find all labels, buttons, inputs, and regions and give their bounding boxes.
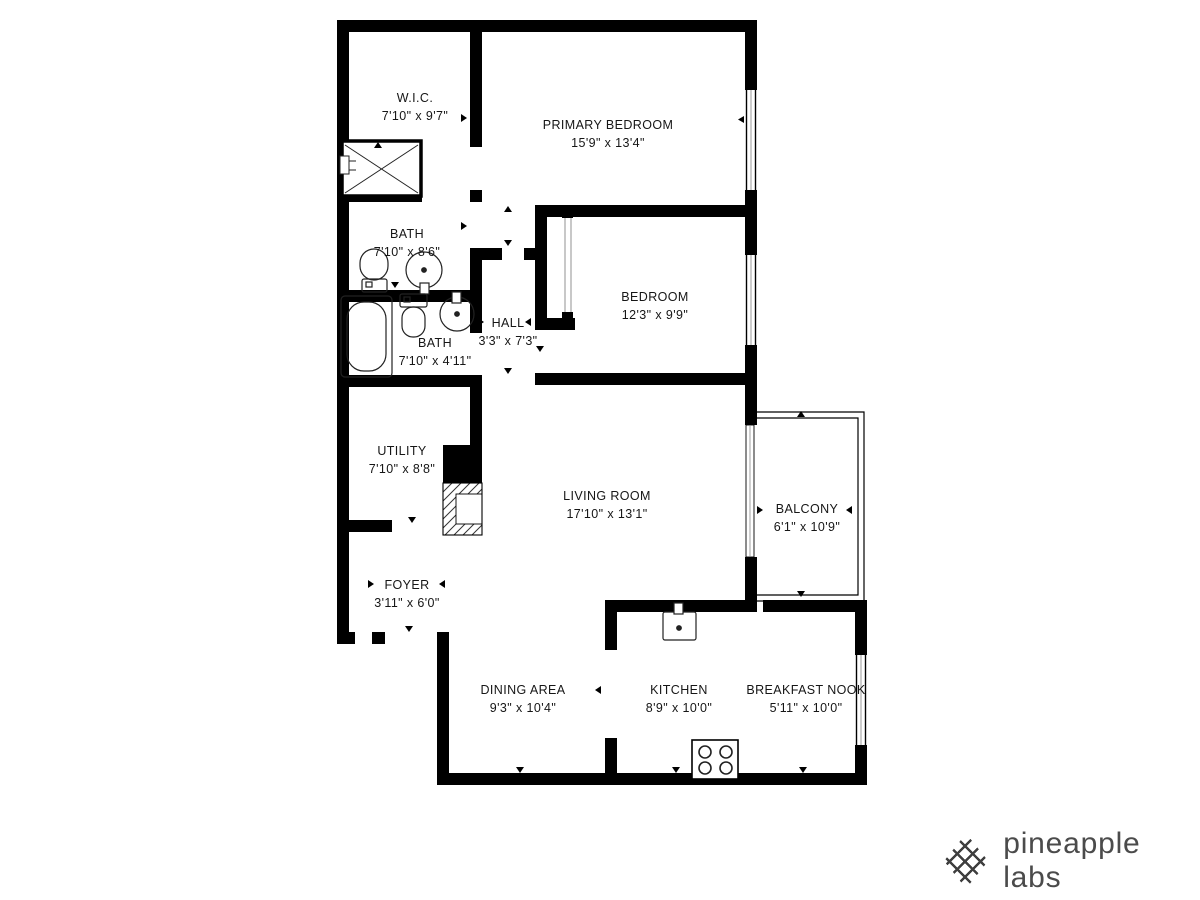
room-label-breakfast-nook: BREAKFAST NOOK 5'11" x 10'0" [746,684,865,715]
room-label-balcony: BALCONY 6'1" x 10'9" [774,503,840,534]
room-dims: 7'10" x 8'8" [369,463,435,476]
room-dims: 6'1" x 10'9" [774,521,840,534]
window-bedroom [745,255,757,345]
room-name: KITCHEN [650,684,708,697]
room-name: PRIMARY BEDROOM [543,119,674,132]
room-dims: 7'10" x 4'11" [399,355,472,368]
room-dims: 3'3" x 7'3" [478,335,537,348]
room-name: W.I.C. [397,92,433,105]
room-label-utility: UTILITY 7'10" x 8'8" [369,445,435,476]
room-name: BREAKFAST NOOK [746,684,865,697]
room-dims: 7'10" x 9'7" [382,110,448,123]
room-label-bath-upper: BATH 7'10" x 8'6" [374,228,440,259]
room-name: HALL [492,317,525,330]
room-name: FOYER [384,579,429,592]
pineapple-lattice-icon [944,834,988,889]
room-label-hall: HALL 3'3" x 7'3" [478,317,537,348]
room-name: BEDROOM [621,291,688,304]
logo: pineapple labs [944,827,1200,895]
room-dims: 12'3" x 9'9" [622,309,688,322]
room-dims: 3'11" x 6'0" [374,597,439,610]
window-primary-bedroom [745,90,757,190]
room-name: UTILITY [377,445,426,458]
shower-icon [340,141,421,196]
room-label-dining-area: DINING AREA 9'3" x 10'4" [481,684,566,715]
closet-door [562,210,573,320]
room-dims: 5'11" x 10'0" [770,702,843,715]
room-name: BATH [390,228,424,241]
floorplan-page: W.I.C. 7'10" x 9'7" PRIMARY BEDROOM 15'9… [0,0,1200,900]
room-label-bath-lower: BATH 7'10" x 4'11" [399,337,472,368]
room-label-kitchen: KITCHEN 8'9" x 10'0" [646,684,712,715]
room-dims: 17'10" x 13'1" [566,508,647,521]
room-label-bedroom: BEDROOM 12'3" x 9'9" [621,291,688,322]
room-name: BALCONY [776,503,839,516]
room-name: LIVING ROOM [563,490,651,503]
balcony-sliding-door [746,425,754,557]
logo-text: pineapple labs [1003,827,1200,895]
room-label-wic: W.I.C. 7'10" x 9'7" [382,92,448,123]
hatched-shaft [443,483,482,535]
room-label-primary-bedroom: PRIMARY BEDROOM 15'9" x 13'4" [543,119,674,150]
room-dims: 15'9" x 13'4" [571,137,645,150]
room-name: BATH [418,337,452,350]
room-name: DINING AREA [481,684,566,697]
room-label-living-room: LIVING ROOM 17'10" x 13'1" [563,490,651,521]
room-dims: 8'9" x 10'0" [646,702,712,715]
room-dims: 9'3" x 10'4" [490,702,556,715]
room-dims: 7'10" x 8'6" [374,246,440,259]
room-label-foyer: FOYER 3'11" x 6'0" [374,579,439,610]
stove-4-burner-icon [692,740,738,779]
